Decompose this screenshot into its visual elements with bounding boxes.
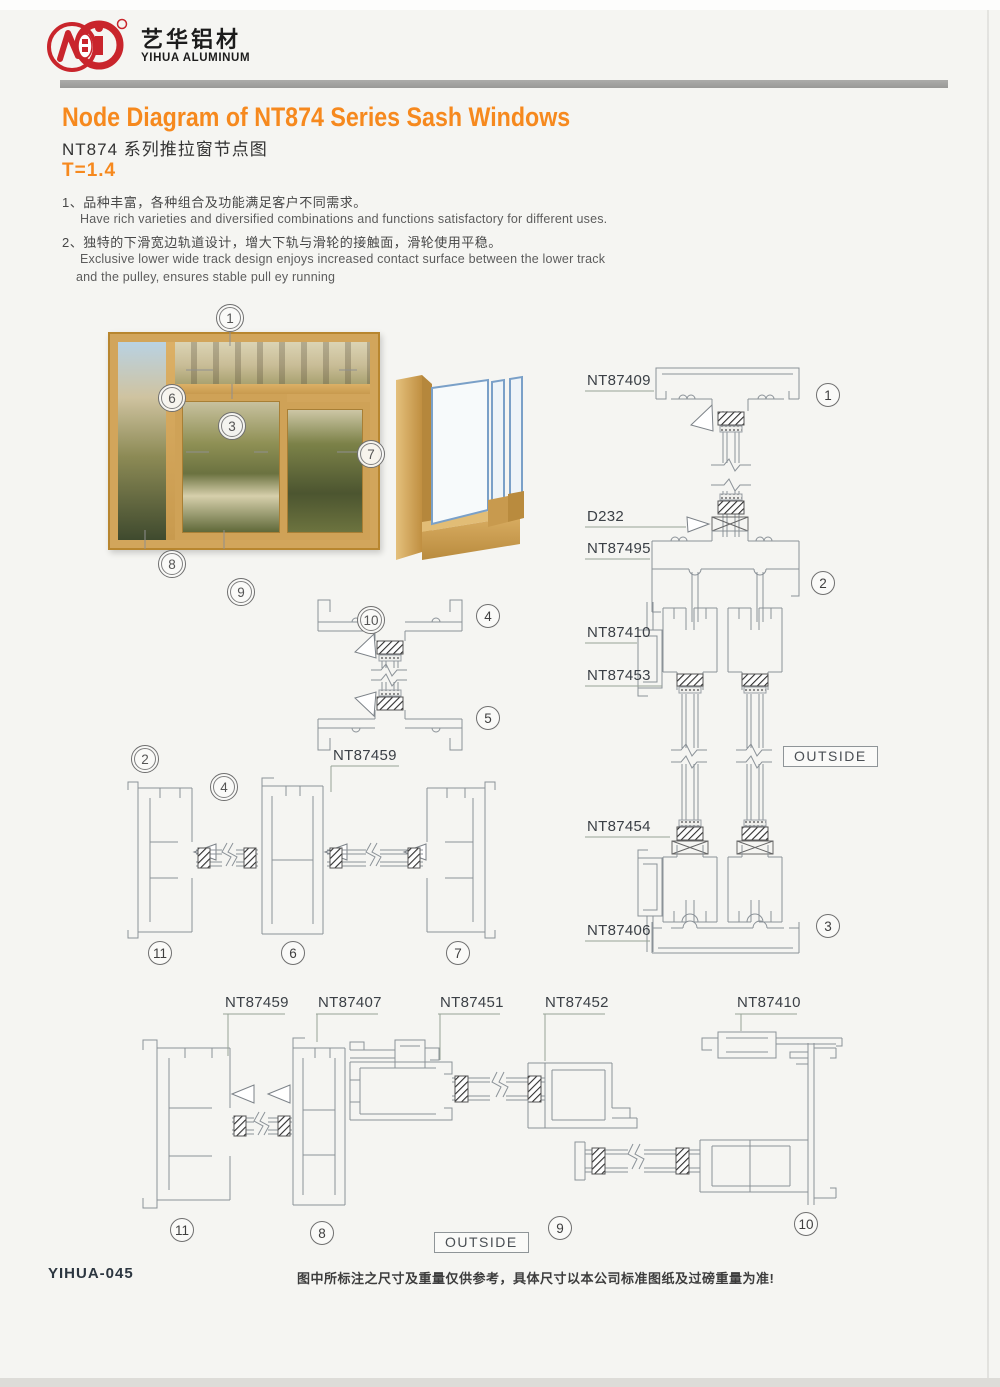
photo-callout-leaders xyxy=(145,331,357,549)
label-nt87451: NT87451 xyxy=(440,994,504,1011)
footer-disclaimer: 图中所标注之尺寸及重量仅供参考，具体尺寸以本公司标准图纸及过磅重量为准! xyxy=(297,1268,774,1287)
callout-photo-9: 9 xyxy=(227,578,255,606)
catalog-page: 艺华铝材 YIHUA ALUMINUM Node Diagram of NT87… xyxy=(0,0,1000,1387)
callout-photo-4: 4 xyxy=(210,773,238,801)
label-leader-lines xyxy=(223,391,797,1061)
label-nt87495: NT87495 xyxy=(587,540,651,557)
label-nt87407: NT87407 xyxy=(318,994,382,1011)
section-number-6: 6 xyxy=(281,941,305,965)
label-d232: D232 xyxy=(587,508,624,525)
diagram-horizontal-section-a xyxy=(128,778,495,938)
label-nt87410-b: NT87410 xyxy=(737,994,801,1011)
section-number-7: 7 xyxy=(446,941,470,965)
label-nt87459-a: NT87459 xyxy=(333,747,397,764)
section-number-3: 3 xyxy=(816,914,840,938)
diagram-horizontal-section-b xyxy=(143,1032,842,1208)
section-number-9: 9 xyxy=(548,1216,572,1240)
callout-photo-2: 2 xyxy=(131,745,159,773)
diagram-vertical-section xyxy=(638,368,799,953)
node-diagrams-lineart xyxy=(0,0,1000,1387)
callout-photo-8: 8 xyxy=(158,550,186,578)
label-nt87409: NT87409 xyxy=(587,372,651,389)
callout-photo-1: 1 xyxy=(216,304,244,332)
section-number-10: 10 xyxy=(794,1212,818,1236)
section-number-4: 4 xyxy=(476,604,500,628)
label-nt87454: NT87454 xyxy=(587,818,651,835)
label-nt87406: NT87406 xyxy=(587,922,651,939)
callout-photo-10: 10 xyxy=(357,606,385,634)
outside-box-bottom: OUTSIDE xyxy=(434,1232,529,1253)
outside-box-right: OUTSIDE xyxy=(783,746,878,767)
diagram-meeting-section xyxy=(318,600,462,750)
section-number-5: 5 xyxy=(476,706,500,730)
section-number-2: 2 xyxy=(811,571,835,595)
section-number-8: 8 xyxy=(310,1221,334,1245)
catalog-code: YIHUA-045 xyxy=(48,1265,134,1282)
label-nt87452: NT87452 xyxy=(545,994,609,1011)
callout-photo-7: 7 xyxy=(357,440,385,468)
callout-photo-6: 6 xyxy=(158,384,186,412)
section-number-1: 1 xyxy=(816,383,840,407)
label-nt87459-b: NT87459 xyxy=(225,994,289,1011)
label-nt87410: NT87410 xyxy=(587,624,651,641)
section-number-11b: 11 xyxy=(170,1218,194,1242)
section-number-11a: 11 xyxy=(148,941,172,965)
label-nt87453: NT87453 xyxy=(587,667,651,684)
callout-photo-3: 3 xyxy=(218,412,246,440)
